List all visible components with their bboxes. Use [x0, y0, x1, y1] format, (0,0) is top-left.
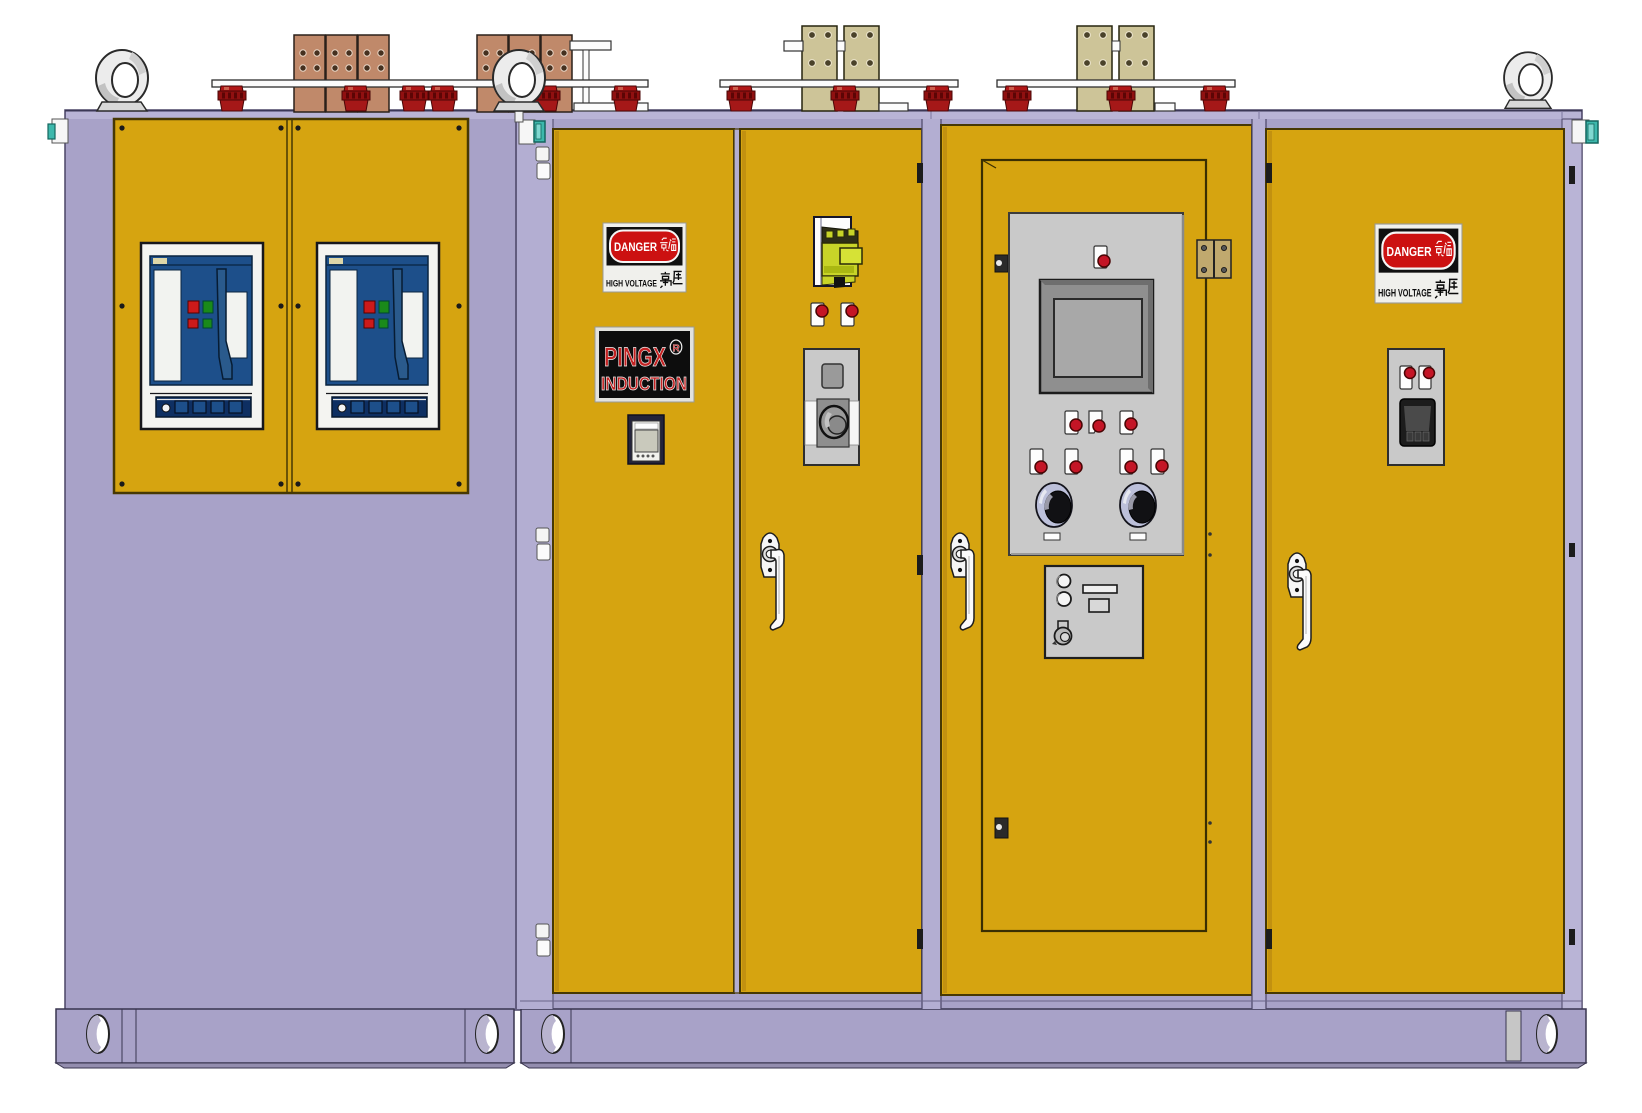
svg-text:R: R [673, 344, 681, 355]
svg-text:PINGX: PINGX [604, 342, 666, 372]
svg-text:INDUCTION: INDUCTION [601, 374, 687, 394]
